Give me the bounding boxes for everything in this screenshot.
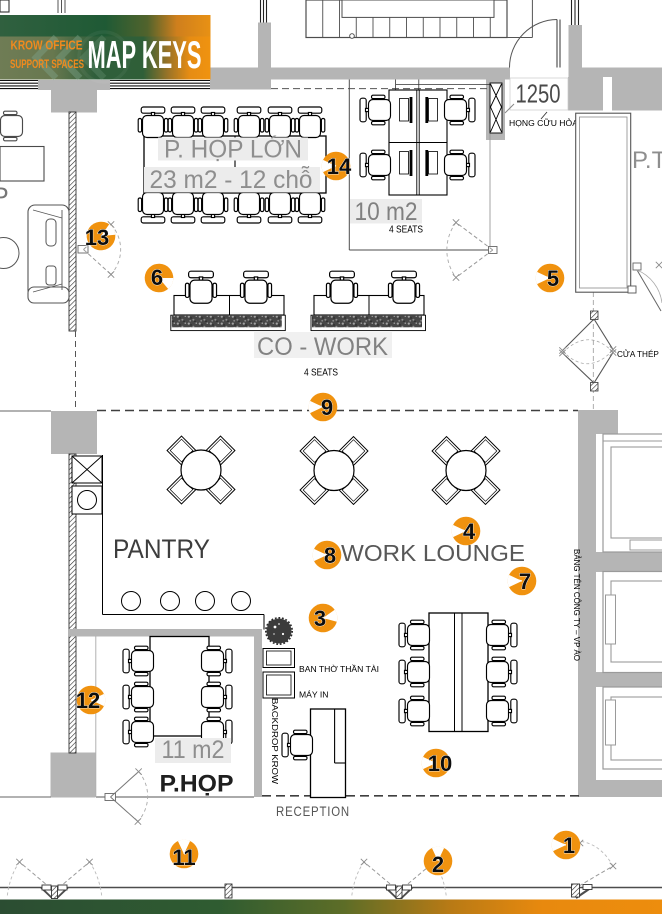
svg-text:CO - WORK: CO - WORK (257, 333, 388, 361)
svg-text:10 m2: 10 m2 (355, 198, 418, 226)
svg-text:14: 14 (327, 154, 352, 179)
svg-text:9: 9 (321, 395, 333, 420)
svg-text:12: 12 (76, 688, 100, 713)
svg-text:CỬA THÉP: CỬA THÉP (617, 348, 659, 359)
svg-text:1: 1 (563, 833, 575, 858)
svg-text:23 m2 - 12 chỗ: 23 m2 - 12 chỗ (150, 165, 313, 194)
svg-text:BẢNG TÊN CÔNG TY – VP ÀO: BẢNG TÊN CÔNG TY – VP ÀO (572, 549, 583, 661)
svg-text:4: 4 (463, 519, 476, 544)
svg-text:11 m2: 11 m2 (162, 736, 225, 764)
svg-text:4 SEATS: 4 SEATS (389, 225, 423, 236)
svg-text:WORK LOUNGE: WORK LOUNGE (341, 540, 525, 566)
svg-text:PANTRY: PANTRY (113, 534, 210, 564)
svg-text:BACKDROP KROW: BACKDROP KROW (270, 698, 280, 784)
svg-text:BAN THỜ THẦN TÀI: BAN THỜ THẦN TÀI (299, 664, 379, 674)
svg-text:5: 5 (547, 266, 559, 291)
svg-text:11: 11 (172, 845, 195, 870)
svg-text:MÁY IN: MÁY IN (299, 690, 328, 700)
svg-text:2: 2 (432, 852, 444, 877)
svg-text:P. HỌP LỚN: P. HỌP LỚN (164, 135, 302, 164)
svg-text:10: 10 (428, 751, 452, 776)
svg-text:8: 8 (324, 543, 336, 568)
svg-text:1250: 1250 (516, 79, 561, 109)
svg-text:KROW OFFICE: KROW OFFICE (11, 39, 83, 53)
svg-text:HỌNG CỮU HỎA: HỌNG CỮU HỎA (509, 117, 578, 128)
svg-text:SUPPORT SPACES: SUPPORT SPACES (10, 59, 84, 71)
svg-text:4 SEATS: 4 SEATS (304, 368, 338, 379)
svg-text:P: P (0, 183, 9, 211)
svg-text:13: 13 (85, 225, 109, 250)
svg-text:3: 3 (314, 606, 326, 631)
svg-text:MAP KEYS: MAP KEYS (88, 34, 202, 77)
svg-text:7: 7 (519, 569, 531, 594)
svg-text:P.HỌP: P.HỌP (160, 771, 234, 798)
svg-text:RECEPTION: RECEPTION (276, 803, 350, 819)
svg-text:6: 6 (151, 265, 163, 290)
svg-text:P.T: P.T (632, 147, 662, 174)
